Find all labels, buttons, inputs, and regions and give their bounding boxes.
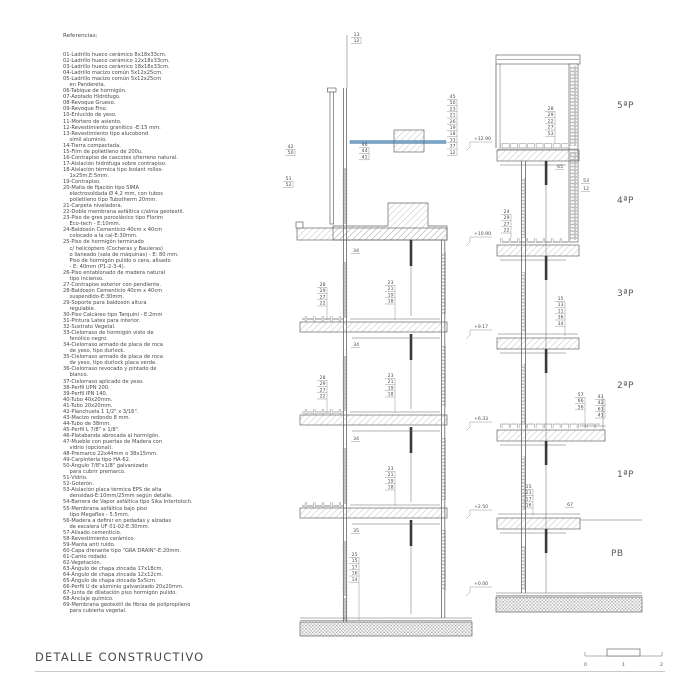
svg-text:34: 34 — [353, 342, 359, 348]
callout-ladder: 2829222753 — [545, 106, 555, 143]
window-frame — [545, 256, 548, 280]
callout-label: 35 — [351, 528, 360, 534]
svg-text:65: 65 — [557, 164, 563, 170]
callout-ladder: 28292722 — [317, 282, 327, 320]
callout-ladder: 1312 — [351, 32, 361, 44]
svg-text:52: 52 — [286, 182, 292, 188]
svg-text:19: 19 — [388, 478, 394, 484]
left-section — [296, 35, 472, 636]
svg-text:21: 21 — [388, 286, 394, 292]
svg-text:28: 28 — [320, 375, 326, 381]
svg-text:15: 15 — [526, 484, 532, 490]
callout-label: 34 — [351, 248, 360, 254]
window-frame — [545, 529, 548, 553]
floor-label: 2ªP — [617, 381, 634, 391]
svg-text:16: 16 — [526, 503, 532, 509]
svg-text:18: 18 — [388, 392, 394, 398]
floor-label-layer: 5ªP4ªP3ªP2ªP1ªPPB — [611, 101, 634, 559]
callout-ladder: 43426341 — [595, 394, 605, 419]
callout-label: 67 — [565, 502, 574, 508]
callout-ladder: 4250 — [285, 144, 295, 156]
svg-text:19: 19 — [388, 292, 394, 298]
callout-ladder: 23211918 — [385, 466, 395, 506]
svg-text:+12.90: +12.90 — [474, 136, 491, 142]
callout-ladder: 1513113634 — [555, 296, 565, 336]
svg-text:29: 29 — [320, 288, 326, 294]
callout-ladder: 5152 — [283, 176, 293, 188]
svg-text:34: 34 — [558, 321, 564, 327]
elevation-marker: +6.33 — [466, 416, 492, 431]
callout-label: 53 — [581, 178, 590, 184]
svg-text:+0.00: +0.00 — [474, 581, 488, 587]
svg-text:25: 25 — [352, 552, 358, 558]
callout-ladder: 24292722 — [501, 209, 511, 238]
floor-label: 1ªP — [617, 470, 634, 480]
svg-text:66: 66 — [578, 398, 584, 404]
svg-text:35: 35 — [353, 528, 359, 534]
scale-number: 0 — [584, 662, 587, 668]
svg-text:51: 51 — [286, 176, 292, 182]
callout-label: 34 — [351, 436, 360, 442]
callout-label: 65 — [555, 164, 564, 170]
svg-text:27: 27 — [320, 387, 326, 393]
svg-text:13: 13 — [354, 32, 360, 38]
svg-text:+9.17: +9.17 — [474, 324, 488, 330]
window-frame — [545, 161, 548, 185]
svg-text:21: 21 — [388, 472, 394, 478]
scale-number: 1 — [622, 662, 625, 668]
floor-label: 3ªP — [617, 289, 634, 299]
ground-slab — [496, 597, 642, 612]
svg-text:22: 22 — [320, 394, 326, 400]
callout-label: 12 — [581, 186, 590, 192]
svg-text:43: 43 — [598, 394, 604, 400]
window-frame — [410, 240, 413, 266]
floor-label: 4ªP — [617, 196, 634, 206]
page-title: DETALLE CONSTRUCTIVO — [35, 650, 204, 664]
svg-text:63: 63 — [598, 406, 604, 412]
callout-ladder: 2515171614 — [349, 552, 359, 620]
svg-text:26: 26 — [450, 119, 456, 125]
window-frame — [545, 441, 548, 465]
callout-label: 34 — [351, 342, 360, 348]
svg-text:45: 45 — [450, 94, 456, 100]
svg-text:29: 29 — [320, 381, 326, 387]
svg-text:15: 15 — [558, 296, 564, 302]
callout-ladder: 28292722 — [317, 375, 327, 413]
elevation-marker: +0.00 — [466, 581, 492, 596]
callout-ladder: 464441 — [359, 142, 369, 160]
svg-text:13: 13 — [558, 302, 564, 308]
ground-slab — [300, 622, 472, 636]
svg-text:44: 44 — [362, 148, 368, 154]
svg-text:12: 12 — [354, 38, 360, 44]
floor-label: PB — [611, 549, 624, 559]
svg-text:+6.33: +6.33 — [474, 416, 488, 422]
floor-label: 5ªP — [617, 101, 634, 111]
svg-text:67: 67 — [567, 502, 573, 508]
svg-text:+2.50: +2.50 — [474, 504, 488, 510]
svg-text:33: 33 — [450, 137, 456, 143]
svg-text:56: 56 — [578, 404, 584, 410]
svg-text:21: 21 — [388, 379, 394, 385]
svg-text:36: 36 — [558, 315, 564, 321]
svg-text:17: 17 — [352, 564, 358, 570]
svg-text:34: 34 — [353, 436, 359, 442]
svg-text:23: 23 — [450, 106, 456, 112]
scale-number: 2 — [660, 662, 663, 668]
window-frame — [545, 349, 548, 373]
svg-text:22: 22 — [548, 118, 554, 124]
svg-text:27: 27 — [320, 294, 326, 300]
svg-text:23: 23 — [388, 373, 394, 379]
svg-text:42: 42 — [288, 144, 294, 150]
svg-text:29: 29 — [504, 215, 510, 221]
elevation-marker: +9.17 — [466, 324, 492, 339]
svg-text:22: 22 — [504, 228, 510, 234]
svg-text:29: 29 — [548, 112, 554, 118]
svg-text:23: 23 — [388, 466, 394, 472]
svg-text:50: 50 — [288, 150, 294, 156]
svg-text:23: 23 — [388, 280, 394, 286]
svg-text:28: 28 — [320, 282, 326, 288]
callout-ladder: 45502321261918333712 — [447, 94, 457, 156]
scale-bar: 012 — [584, 649, 663, 668]
svg-text:15: 15 — [352, 558, 358, 564]
svg-text:12: 12 — [583, 186, 589, 192]
svg-text:50: 50 — [450, 100, 456, 106]
svg-text:53: 53 — [583, 178, 589, 184]
elevation-layer: +12.90+10.90+9.17+6.33+2.50+0.00 — [466, 136, 492, 596]
svg-text:24: 24 — [504, 209, 510, 215]
svg-text:41: 41 — [598, 413, 604, 419]
svg-text:27: 27 — [548, 125, 554, 131]
elevation-marker: +2.50 — [466, 504, 492, 519]
svg-text:11: 11 — [558, 308, 564, 314]
callout-ladder: 576656 — [575, 392, 585, 428]
construction-detail-drawing: 4250515246444145502321261918333712131228… — [0, 0, 700, 700]
right-section — [496, 55, 642, 612]
svg-text:46: 46 — [362, 142, 368, 148]
footer-rule — [35, 671, 665, 672]
svg-text:42: 42 — [598, 400, 604, 406]
svg-text:16: 16 — [352, 571, 358, 577]
svg-text:34: 34 — [353, 248, 359, 254]
svg-text:18: 18 — [450, 131, 456, 137]
svg-text:18: 18 — [388, 485, 394, 491]
svg-text:57: 57 — [578, 392, 584, 398]
svg-text:19: 19 — [388, 385, 394, 391]
svg-text:18: 18 — [388, 299, 394, 305]
svg-text:21: 21 — [450, 113, 456, 119]
svg-text:21: 21 — [526, 490, 532, 496]
svg-text:28: 28 — [548, 106, 554, 112]
svg-text:17: 17 — [526, 496, 532, 502]
callout-ladder: 23211918 — [385, 280, 395, 320]
elevation-marker: +10.90 — [466, 231, 492, 246]
svg-text:22: 22 — [320, 301, 326, 307]
callout-ladder: 23211918 — [385, 373, 395, 413]
svg-text:12: 12 — [450, 150, 456, 156]
svg-text:37: 37 — [450, 144, 456, 150]
svg-text:41: 41 — [362, 154, 368, 160]
svg-text:19: 19 — [450, 125, 456, 131]
svg-text:53: 53 — [548, 131, 554, 137]
elevation-marker: +12.90 — [466, 136, 492, 151]
svg-text:14: 14 — [352, 577, 358, 583]
svg-text:+10.90: +10.90 — [474, 231, 491, 237]
svg-text:27: 27 — [504, 221, 510, 227]
